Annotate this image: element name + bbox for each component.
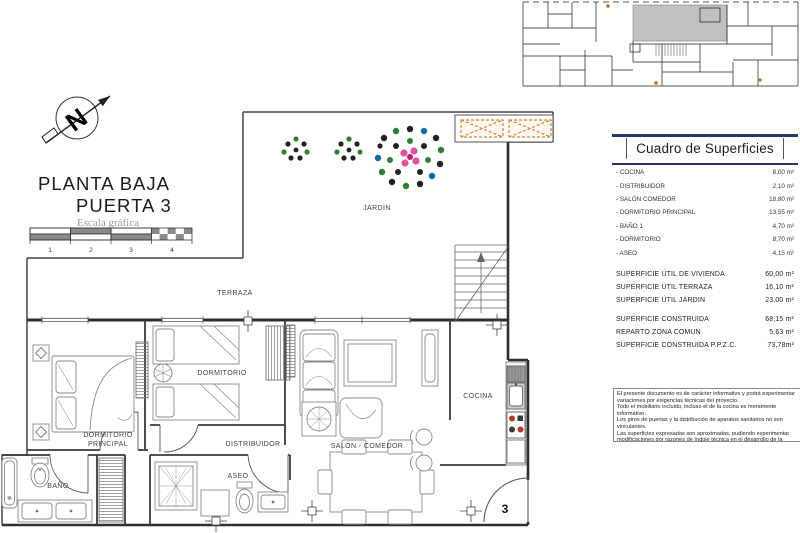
- legal-disclaimer: El presente documento es de carácter inf…: [613, 388, 800, 442]
- surface-row: - SALÓN COMEDOR 18,80 m²: [616, 193, 794, 206]
- surfaces-panel: Cuadro de Superficies - COCINA 8,00 m² -…: [612, 0, 800, 533]
- surface-label: - DISTRIBUIDOR: [616, 183, 665, 190]
- surface-row: SUPERFICIE CONSTRUIDA P.P.Z.C. 73,78m²: [616, 339, 794, 352]
- surface-label: SUPERFICIE CONSTRUIDA: [616, 316, 709, 323]
- disclaimer-line: Todo el mobiliario incluido, incluso el …: [617, 404, 797, 417]
- surface-row: - DORMITORIO PRINCIPAL 13,55 m²: [616, 206, 794, 219]
- scale-tick-4: 4: [170, 247, 174, 254]
- surface-value: 13,55 m²: [769, 209, 794, 216]
- surfaces-table-title: Cuadro de Superficies: [626, 138, 784, 159]
- surfaces-construidas: SUPERFICIE CONSTRUIDA 68,15 m² REPARTO Z…: [616, 313, 794, 352]
- room-label-dormitorio: DORMITORIO: [197, 370, 247, 377]
- surface-label: - COCINA: [616, 169, 644, 176]
- surface-value: 8,70 m²: [773, 236, 794, 243]
- flower-bed: [375, 126, 444, 189]
- surface-value: 5,63 m²: [769, 329, 794, 336]
- disclaimer-line: Los giros de puertas y la distribución d…: [617, 417, 797, 430]
- surface-row: - DISTRIBUIDOR 2,10 m²: [616, 179, 794, 192]
- surface-value: 60,00 m²: [765, 271, 794, 278]
- room-label-dormitorio-principal-1: DORMITORIO: [83, 432, 133, 439]
- surface-label: SUPERFICIE ÚTIL DE VIVIENDA: [616, 271, 725, 278]
- garden-plants: [281, 126, 444, 189]
- room-label-salon-comedor: SALÓN - COMEDOR: [331, 441, 404, 450]
- room-label-cocina: COCINA: [463, 393, 493, 400]
- surface-label: - SALÓN COMEDOR: [616, 196, 676, 203]
- plan-title-line1: PLANTA BAJA: [38, 173, 170, 194]
- north-arrow-icon: N: [42, 96, 110, 143]
- surfaces-utiles: SUPERFICIE ÚTIL DE VIVIENDA 60,00 m² SUP…: [616, 268, 794, 307]
- scale-bar: 1 2 3 4: [30, 228, 192, 254]
- surface-label: SUPERFICIE ÚTIL JARDIN: [616, 297, 705, 304]
- surface-row: SUPERFICIE ÚTIL DE VIVIENDA 60,00 m²: [616, 268, 794, 281]
- surface-row: - COCINA 8,00 m²: [616, 166, 794, 179]
- stair: [455, 245, 508, 322]
- surface-row: - ASEO 4,15 m²: [616, 246, 794, 259]
- scale-caption: Escala gráfica: [77, 217, 139, 229]
- surface-value: 4,15 m²: [773, 250, 794, 257]
- surface-value: 73,78m²: [767, 342, 794, 349]
- furniture-bano: [2, 458, 123, 522]
- surface-value: 4,70 m²: [773, 223, 794, 230]
- surface-label: - DORMITORIO: [616, 236, 661, 243]
- surface-value: 68,15 m²: [765, 316, 794, 323]
- panel-title-rule: [612, 163, 798, 165]
- surface-value: 23,00 m²: [765, 297, 794, 304]
- surface-row: - DORMITORIO 8,70 m²: [616, 233, 794, 246]
- surface-label: SUPERFICIE CONSTRUIDA P.P.Z.C.: [616, 342, 737, 349]
- room-label-jardin: JARDIN: [363, 205, 391, 212]
- surface-value: 16,10 m²: [765, 284, 794, 291]
- door-number: 3: [502, 502, 509, 516]
- surface-value: 8,00 m²: [773, 169, 794, 176]
- surface-label: REPARTO ZONA COMUN: [616, 329, 701, 336]
- room-label-bano: BAÑO: [47, 481, 69, 490]
- room-label-aseo: ASEO: [227, 473, 248, 480]
- surface-label: - ASEO: [616, 250, 637, 257]
- surface-label: SUPERFICIE ÚTIL TERRAZA: [616, 284, 713, 291]
- surface-value: 18,80 m²: [769, 196, 794, 203]
- furniture-salon: [286, 325, 438, 524]
- panel-top-rule: [612, 134, 798, 137]
- surface-value: 2,10 m²: [773, 183, 794, 190]
- scale-tick-3: 3: [129, 247, 133, 254]
- pergola-panels: [455, 115, 553, 142]
- room-label-terraza: TERRAZA: [217, 290, 252, 297]
- scale-tick-2: 2: [89, 247, 93, 254]
- disclaimer-line: Las superficies expresadas son aproximad…: [617, 431, 797, 442]
- surface-row: - BAÑO 1 4,70 m²: [616, 220, 794, 233]
- furniture-aseo: [155, 462, 288, 516]
- surface-label: - DORMITORIO PRINCIPAL: [616, 209, 695, 216]
- surfaces-room-list: - COCINA 8,00 m² - DISTRIBUIDOR 2,10 m² …: [616, 166, 794, 260]
- disclaimer-line: El presente documento es de carácter inf…: [617, 391, 797, 404]
- furniture-dormitorio-principal: [33, 342, 148, 440]
- surface-row: SUPERFICIE CONSTRUIDA 68,15 m²: [616, 313, 794, 326]
- surface-row: REPARTO ZONA COMUN 5,63 m²: [616, 326, 794, 339]
- plan-title-line2: PUERTA 3: [76, 195, 172, 216]
- title-block: PLANTA BAJA PUERTA 3 Escala gráfica: [38, 173, 172, 229]
- room-label-distribuidor: DISTRIBUIDOR: [226, 441, 281, 448]
- room-label-dormitorio-principal-2: PRINCIPAL: [88, 441, 128, 448]
- surface-label: - BAÑO 1: [616, 223, 643, 230]
- surface-row: SUPERFICIE ÚTIL TERRAZA 16,10 m²: [616, 281, 794, 294]
- surface-row: SUPERFICIE ÚTIL JARDIN 23,00 m²: [616, 294, 794, 307]
- svg-text:N: N: [60, 102, 93, 137]
- drawing-sheet: N PLANTA BAJA PUERTA 3 Escala gráfica 1 …: [0, 0, 800, 533]
- scale-tick-1: 1: [48, 247, 52, 254]
